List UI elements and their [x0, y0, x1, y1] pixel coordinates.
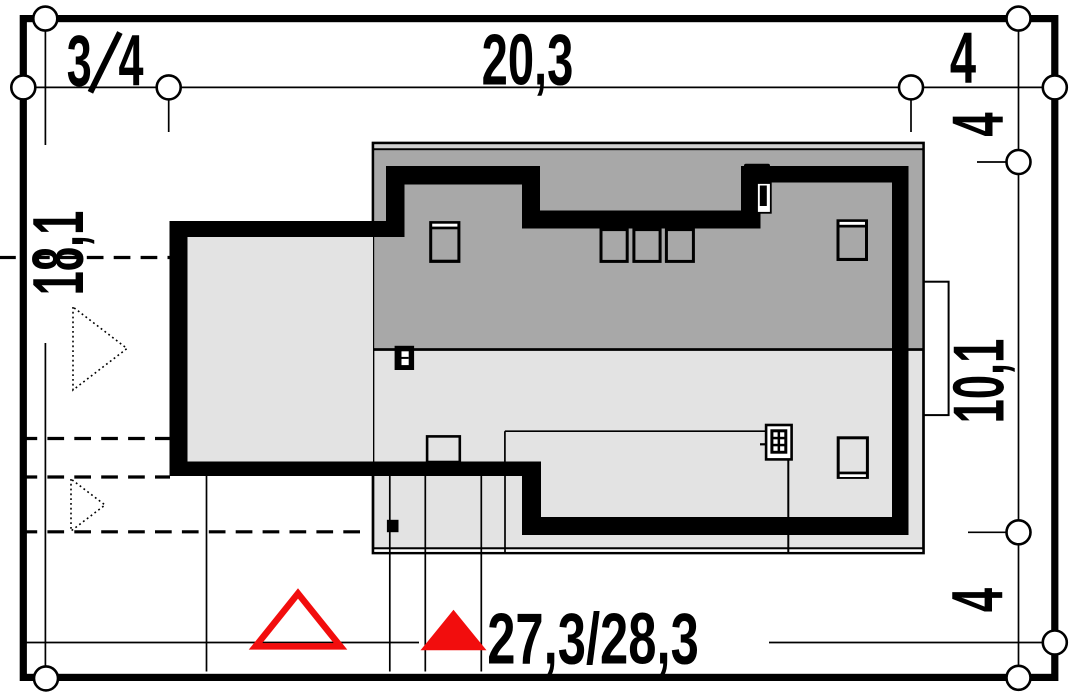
svg-text:4: 4 [119, 19, 144, 101]
svg-text:20,3: 20,3 [482, 19, 574, 100]
svg-text:10,1: 10,1 [938, 339, 1019, 424]
svg-text:3: 3 [67, 19, 92, 101]
svg-text:4: 4 [950, 17, 976, 98]
svg-text:4: 4 [937, 112, 1018, 136]
svg-text:4: 4 [937, 588, 1018, 612]
svg-text:27,3/28,3: 27,3/28,3 [487, 598, 699, 679]
svg-text:18,1: 18,1 [17, 211, 98, 296]
